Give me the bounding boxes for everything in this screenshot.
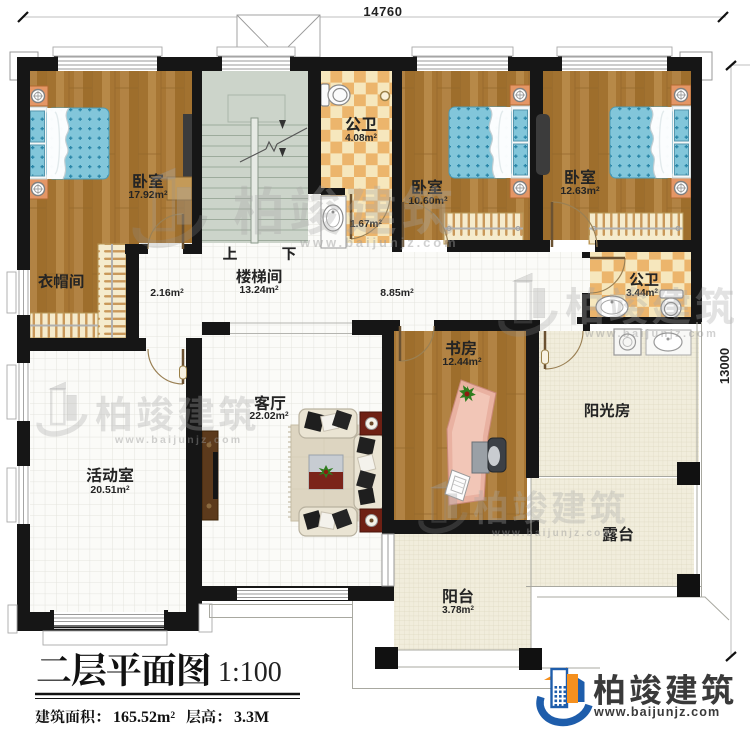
svg-text:22.02m2: 22.02m2 — [249, 410, 289, 422]
svg-text:12.63m2: 12.63m2 — [560, 185, 600, 197]
svg-text:12.44m2: 12.44m2 — [442, 356, 482, 368]
svg-text:17.92m2: 17.92m2 — [128, 189, 168, 201]
svg-text:14760: 14760 — [363, 4, 402, 19]
svg-text:13000: 13000 — [717, 348, 732, 384]
svg-text:3.78m2: 3.78m2 — [442, 605, 474, 616]
svg-text:www.baijunjz.com: www.baijunjz.com — [491, 528, 614, 539]
svg-text:3.3M: 3.3M — [234, 709, 269, 726]
svg-text:13.24m2: 13.24m2 — [239, 284, 279, 296]
svg-text:www.baijunjz.com: www.baijunjz.com — [299, 235, 459, 250]
svg-text:www.baijunjz.com: www.baijunjz.com — [593, 705, 720, 719]
svg-text:www.baijunjz.com: www.baijunjz.com — [584, 328, 718, 340]
svg-text:2.16m2: 2.16m2 — [150, 287, 184, 299]
svg-text:165.52m2: 165.52m2 — [113, 709, 175, 726]
svg-text:www.baijunjz.com: www.baijunjz.com — [114, 434, 242, 446]
svg-text:1:100: 1:100 — [218, 657, 282, 688]
svg-text:8.85m2: 8.85m2 — [380, 287, 414, 299]
svg-text:4.08m2: 4.08m2 — [345, 133, 377, 144]
svg-text:20.51m2: 20.51m2 — [90, 484, 130, 496]
